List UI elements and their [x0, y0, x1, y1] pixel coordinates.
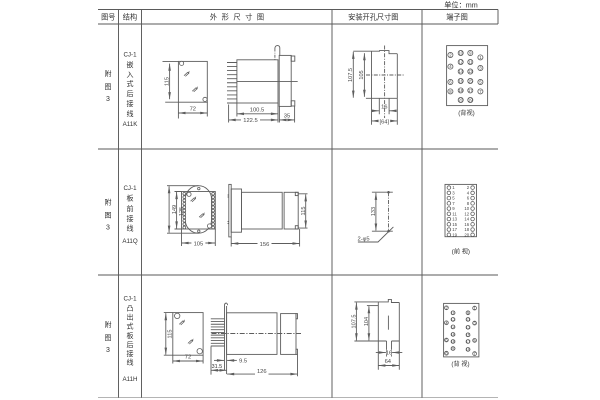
svg-text:11: 11 — [468, 60, 473, 65]
svg-text:16: 16 — [451, 332, 456, 337]
svg-text:A11H: A11H — [122, 376, 137, 383]
svg-text:16: 16 — [386, 351, 392, 357]
svg-text:64: 64 — [385, 359, 392, 365]
svg-text:图号: 图号 — [101, 13, 115, 22]
svg-text:125: 125 — [179, 207, 185, 216]
svg-text:19: 19 — [468, 98, 473, 103]
svg-text:附: 附 — [105, 198, 112, 207]
svg-text:14: 14 — [458, 69, 463, 74]
svg-text:图: 图 — [105, 83, 112, 91]
svg-text:126: 126 — [257, 369, 267, 375]
svg-text:10: 10 — [451, 310, 456, 315]
svg-text:尺: 尺 — [233, 13, 240, 22]
svg-text:20: 20 — [464, 232, 469, 237]
svg-text:15: 15 — [468, 79, 473, 84]
svg-text:133: 133 — [371, 207, 377, 216]
svg-text:式: 式 — [127, 322, 134, 331]
svg-text:19: 19 — [452, 232, 457, 237]
svg-text:9: 9 — [452, 206, 455, 211]
svg-text:3: 3 — [106, 225, 110, 232]
svg-text:72: 72 — [190, 107, 196, 113]
svg-text:CJ-1: CJ-1 — [123, 185, 137, 192]
svg-text:[64]: [64] — [379, 119, 389, 125]
svg-text:形: 形 — [222, 13, 229, 22]
svg-text:嵌: 嵌 — [127, 61, 134, 69]
svg-text:出: 出 — [127, 312, 134, 321]
svg-text:线: 线 — [127, 224, 134, 233]
svg-text:图: 图 — [105, 212, 112, 220]
svg-text:式: 式 — [127, 79, 134, 88]
svg-text:105: 105 — [194, 241, 204, 247]
svg-text:线: 线 — [127, 358, 134, 367]
svg-text:图: 图 — [257, 13, 264, 22]
svg-text:13: 13 — [466, 325, 471, 330]
svg-text:104: 104 — [364, 317, 370, 326]
svg-text:后: 后 — [127, 340, 134, 349]
svg-text:4: 4 — [467, 190, 470, 195]
svg-text:18: 18 — [451, 339, 456, 344]
svg-text:9.5: 9.5 — [239, 359, 247, 365]
svg-text:12: 12 — [451, 317, 456, 322]
svg-text:(背视): (背视) — [458, 109, 475, 117]
svg-text:CJ-1: CJ-1 — [123, 52, 137, 59]
svg-text:12: 12 — [458, 60, 463, 65]
svg-text:11: 11 — [466, 317, 471, 322]
svg-text:板: 板 — [127, 331, 134, 340]
svg-text:10: 10 — [458, 51, 463, 56]
svg-text:3: 3 — [106, 96, 110, 103]
svg-text:107.5: 107.5 — [348, 68, 354, 82]
svg-text:15: 15 — [452, 222, 457, 227]
svg-text:接: 接 — [127, 214, 134, 223]
svg-text:A11K: A11K — [123, 121, 139, 128]
svg-text:16: 16 — [458, 79, 463, 84]
svg-text:3: 3 — [452, 190, 455, 195]
svg-text:122.5: 122.5 — [243, 118, 258, 124]
svg-text:156: 156 — [260, 242, 270, 248]
svg-text:13: 13 — [468, 69, 473, 74]
svg-text:20: 20 — [458, 98, 463, 103]
svg-text:后: 后 — [127, 89, 134, 98]
svg-text:35: 35 — [284, 114, 290, 120]
svg-text:115: 115 — [301, 207, 307, 216]
svg-text:A11Q: A11Q — [122, 238, 138, 245]
svg-text:接: 接 — [127, 349, 134, 358]
svg-text:16: 16 — [464, 222, 469, 227]
svg-text:3: 3 — [106, 347, 110, 354]
svg-text:安装开孔尺寸图: 安装开孔尺寸图 — [348, 13, 398, 22]
svg-text:附: 附 — [105, 320, 112, 329]
svg-text:(背 视): (背 视) — [451, 360, 469, 368]
svg-text:凸: 凸 — [127, 305, 134, 313]
svg-text:入: 入 — [127, 71, 134, 79]
svg-text:寸: 寸 — [245, 13, 252, 22]
svg-text:2-φ5: 2-φ5 — [358, 237, 370, 243]
svg-text:板: 板 — [127, 194, 134, 203]
svg-text:18: 18 — [458, 88, 463, 93]
svg-text:115: 115 — [168, 330, 174, 339]
svg-text:结构: 结构 — [123, 13, 137, 22]
svg-text:149: 149 — [172, 205, 178, 214]
svg-text:14: 14 — [451, 324, 456, 329]
svg-text:附: 附 — [105, 69, 112, 78]
svg-text:20: 20 — [451, 346, 456, 351]
svg-text:72: 72 — [185, 355, 191, 361]
svg-text:31.5: 31.5 — [212, 364, 223, 370]
svg-text:17: 17 — [468, 88, 473, 93]
svg-text:外: 外 — [210, 13, 217, 22]
svg-text:前: 前 — [127, 204, 134, 213]
svg-text:线: 线 — [127, 109, 134, 118]
svg-text:图: 图 — [105, 334, 112, 342]
svg-text:19: 19 — [466, 347, 471, 352]
svg-text:107.5: 107.5 — [351, 315, 357, 329]
svg-text:CJ-1: CJ-1 — [123, 296, 137, 303]
svg-text:10: 10 — [464, 206, 469, 211]
svg-text:单位：mm: 单位：mm — [444, 1, 478, 10]
svg-text:接: 接 — [127, 99, 134, 108]
svg-text:17: 17 — [466, 339, 471, 344]
svg-text:105: 105 — [359, 70, 365, 79]
svg-text:100.5: 100.5 — [250, 107, 265, 113]
svg-text:(前 视): (前 视) — [452, 247, 470, 255]
svg-text:16: 16 — [381, 104, 387, 110]
svg-text:端子图: 端子图 — [446, 13, 468, 22]
svg-text:115: 115 — [165, 77, 171, 86]
svg-text:15: 15 — [466, 332, 471, 337]
